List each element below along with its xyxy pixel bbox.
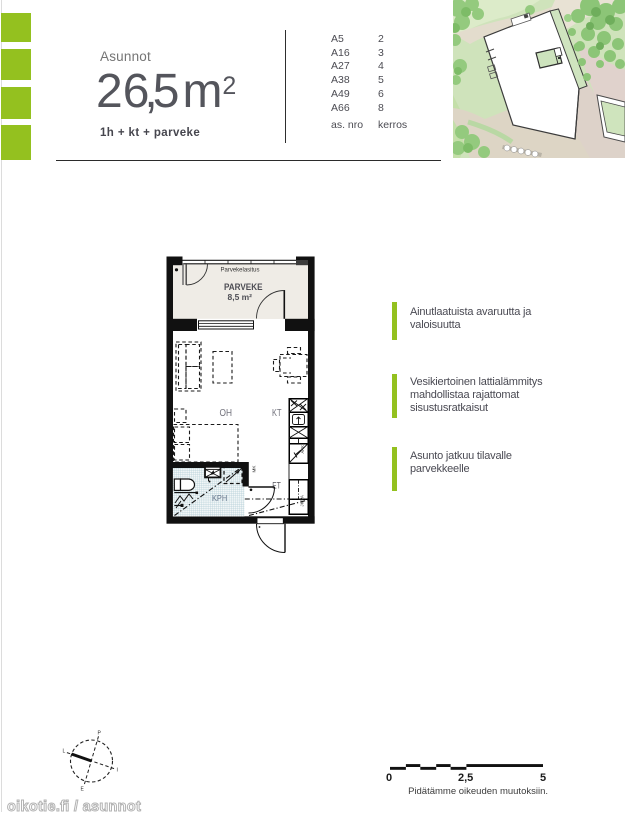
svg-text:KT: KT: [272, 407, 282, 419]
svg-text:L: L: [63, 749, 66, 755]
svg-text:0: 0: [386, 772, 392, 784]
svg-text:E: E: [81, 787, 85, 793]
svg-text:ET: ET: [272, 480, 281, 490]
svg-text:OH: OH: [220, 407, 233, 419]
svg-text:5: 5: [540, 772, 546, 784]
svg-text:APK: APK: [300, 445, 305, 454]
svg-text:I: I: [117, 768, 118, 774]
svg-text:Pidätämme oikeuden muutoksiin.: Pidätämme oikeuden muutoksiin.: [408, 786, 548, 797]
svg-text:KPH: KPH: [212, 494, 227, 503]
svg-text:P: P: [98, 731, 102, 737]
svg-text:Parvekelasitus: Parvekelasitus: [220, 268, 259, 274]
svg-text:2,5: 2,5: [458, 772, 473, 784]
svg-text:8,5 m²: 8,5 m²: [228, 293, 253, 302]
svg-text:PARVEKE: PARVEKE: [224, 282, 263, 292]
svg-text:MK: MK: [252, 465, 257, 473]
